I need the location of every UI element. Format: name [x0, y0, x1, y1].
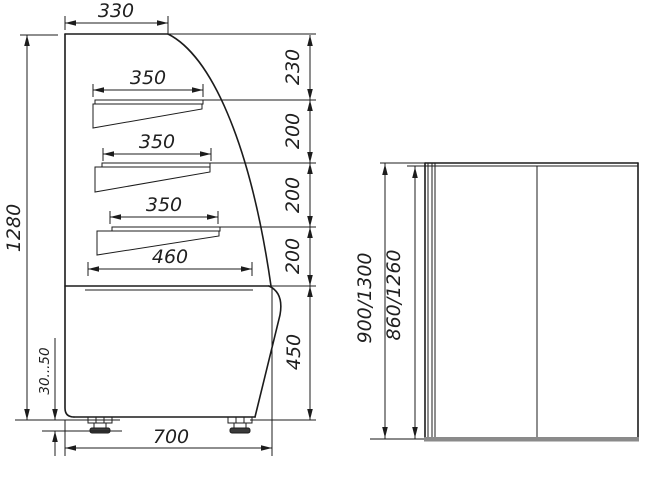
dim-label-top-depth: 330: [98, 0, 134, 22]
dim-label-shelf-1: 350: [130, 67, 166, 89]
base-front-slope: [255, 286, 281, 417]
dim-label-base-depth: 700: [153, 426, 189, 448]
display-case-dimension-drawing: 330 350 350 350 460: [0, 0, 655, 480]
adjustable-foot-right: [228, 417, 252, 433]
dim-label-seg-2: 200: [282, 113, 304, 149]
dim-label-seg-4: 200: [282, 238, 304, 274]
plinth-bar: [424, 437, 639, 442]
technical-drawing-sheet: 330 350 350 350 460: [0, 0, 655, 480]
shelf-2: [95, 163, 210, 192]
dim-shelf-3: 350: [110, 194, 218, 220]
dim-top-depth: 330: [65, 0, 168, 26]
dim-label-overall-height: 900/1300: [354, 252, 376, 343]
dim-label-base-height: 450: [283, 334, 305, 370]
dim-label-seg-top: 230: [282, 49, 304, 85]
front-elevation-view: 330 350 350 350 460: [3, 0, 316, 456]
dim-shelf-1: 350: [93, 67, 203, 93]
dim-inner-height: 860/1260: [383, 166, 425, 439]
dim-label-shelf-3: 350: [146, 194, 182, 216]
side-elevation-view: 900/1300 860/1260: [354, 163, 639, 442]
glass-edge-lines: [428, 163, 435, 437]
dim-total-height: 1280: [3, 35, 30, 420]
dim-label-seg-3: 200: [282, 177, 304, 213]
dim-label-deck: 460: [152, 246, 188, 268]
dim-leg-adjust: 30...50: [37, 338, 58, 456]
shelf-1: [93, 100, 203, 128]
dim-deck: 460: [88, 246, 252, 272]
dim-label-shelf-2: 350: [139, 131, 175, 153]
dim-label-total-height: 1280: [3, 204, 25, 252]
dim-label-inner-height: 860/1260: [383, 249, 405, 340]
dim-label-leg-adjust: 30...50: [37, 347, 53, 394]
dim-shelf-2: 350: [103, 131, 211, 157]
foot-pad: [230, 428, 250, 433]
cabinet-outline: [370, 163, 639, 442]
case-body-outline: [65, 34, 281, 417]
